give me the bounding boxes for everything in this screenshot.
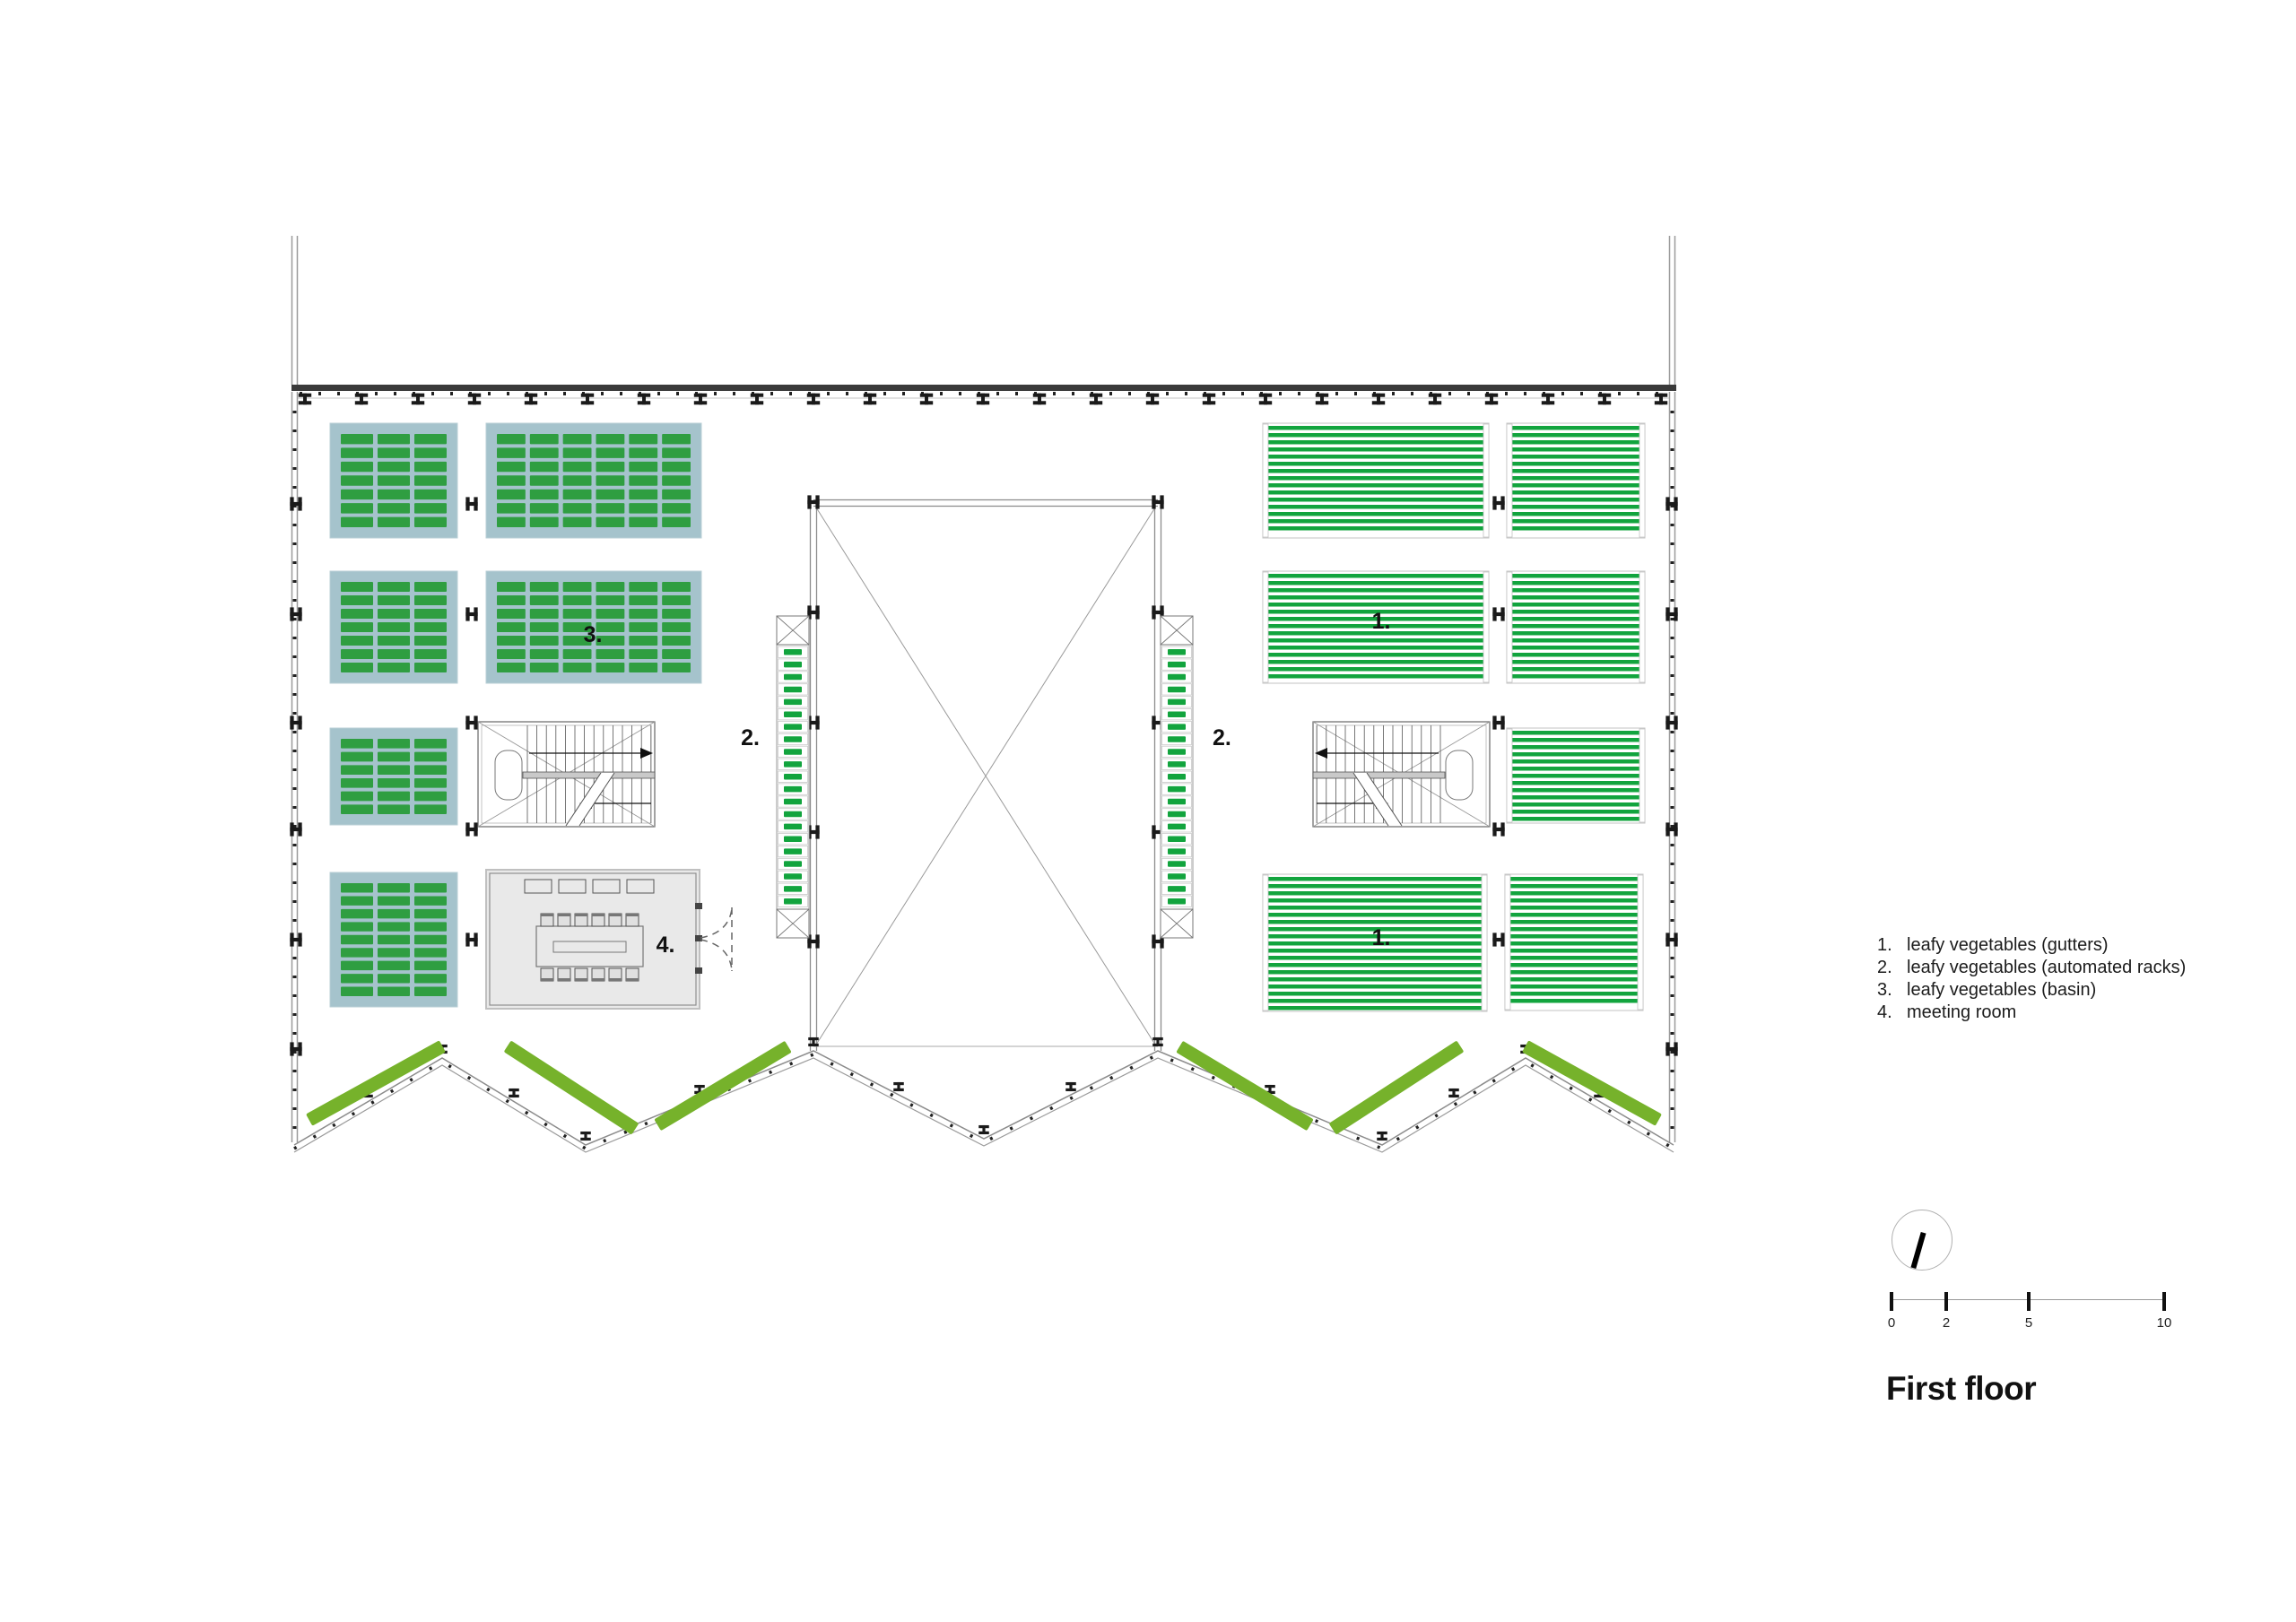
scale-bar: 0 2 5 10 [1890, 1292, 2164, 1333]
facade-planting-strip [1176, 1041, 1313, 1131]
i-column-icon [1448, 1089, 1459, 1097]
i-column-icon [1033, 394, 1046, 405]
h-column-icon [290, 1042, 301, 1055]
scale-label: 5 [2025, 1315, 2032, 1331]
meeting-table [536, 926, 643, 967]
i-column-icon [978, 1125, 989, 1134]
i-column-icon [1598, 394, 1611, 405]
legend-label: meeting room [1907, 1002, 2016, 1024]
facade-planting-strip [1522, 1040, 1662, 1126]
atrium [811, 499, 1161, 1051]
i-column-icon [299, 394, 311, 405]
cabinet [627, 880, 654, 893]
gutter-bed [1507, 571, 1645, 683]
scale-tick [1944, 1292, 1948, 1311]
floor-plan-sheet: 3. 1. 1. 2. 2. 4. 1. leafy vegetables (g… [0, 0, 2296, 1622]
i-column-icon [977, 394, 989, 405]
north-wall [291, 385, 1676, 391]
i-column-icon [1372, 394, 1385, 405]
cabinet [559, 880, 586, 893]
south-zigzag-facade [294, 1037, 1674, 1152]
i-column-icon [355, 394, 368, 405]
cabinet [525, 880, 552, 893]
i-column-icon [751, 394, 763, 405]
i-column-icon [1090, 394, 1102, 405]
legend-item-2: 2. leafy vegetables (automated racks) [1877, 957, 2186, 979]
basin [330, 728, 457, 825]
i-column-icon [580, 1132, 591, 1141]
gutter-bed [1505, 874, 1643, 1010]
h-column-icon [465, 932, 477, 946]
i-column-icon [468, 394, 481, 405]
legend-num: 3. [1877, 979, 1907, 1002]
h-column-icon [1665, 932, 1677, 946]
scale-tick [2162, 1292, 2166, 1311]
i-column-icon [1429, 394, 1441, 405]
gutter-bed [1507, 728, 1645, 823]
scale-label: 10 [2157, 1315, 2172, 1331]
i-column-icon [864, 394, 876, 405]
i-column-icon [581, 394, 594, 405]
label-gutters-upper: 1. [1372, 609, 1391, 634]
label-racks-right: 2. [1213, 725, 1231, 750]
h-column-icon [290, 822, 301, 836]
h-column-icon [1665, 716, 1677, 729]
legend-num: 2. [1877, 957, 1907, 979]
label-gutters-lower: 1. [1372, 925, 1391, 950]
h-column-icon [465, 716, 477, 729]
h-column-icon [290, 932, 301, 946]
h-column-icon [1492, 496, 1504, 509]
right-staircase [1313, 722, 1490, 827]
left-staircase [478, 722, 655, 827]
staircases [478, 722, 1490, 827]
cabinet [593, 880, 620, 893]
scale-label: 2 [1943, 1315, 1950, 1331]
facade-planting-strips [306, 1040, 1662, 1134]
basin [330, 571, 457, 683]
upper-canopy-lines [292, 236, 1675, 385]
h-column-icon [1492, 932, 1504, 946]
facade-planting-strip [654, 1041, 791, 1131]
h-column-icon [1665, 1042, 1677, 1055]
h-column-icon [290, 497, 301, 510]
i-column-icon [1377, 1132, 1387, 1141]
h-column-icon [1492, 716, 1504, 729]
legend: 1. leafy vegetables (gutters) 2. leafy v… [1877, 934, 2186, 1024]
label-basin: 3. [584, 622, 603, 647]
label-racks-left: 2. [741, 725, 760, 750]
h-column-icon [1665, 822, 1677, 836]
i-column-icon [893, 1082, 904, 1091]
i-column-icon [525, 394, 537, 405]
i-column-icon [1146, 394, 1159, 405]
i-column-icon [1065, 1082, 1076, 1091]
gutter-bed [1507, 423, 1645, 538]
automated-rack [777, 616, 809, 938]
i-column-icon [638, 394, 650, 405]
i-column-icon [412, 394, 424, 405]
north-arrow-icon [1892, 1210, 1952, 1271]
i-column-icon [1485, 394, 1498, 405]
i-column-icon [807, 394, 820, 405]
legend-num: 1. [1877, 934, 1907, 957]
h-column-icon [1665, 497, 1677, 510]
automated-rack [1161, 616, 1193, 938]
h-column-icon [1492, 822, 1504, 836]
legend-item-4: 4. meeting room [1877, 1002, 2186, 1024]
legend-item-1: 1. leafy vegetables (gutters) [1877, 934, 2186, 957]
legend-label: leafy vegetables (automated racks) [1907, 957, 2186, 979]
facade-planting-strip [1329, 1040, 1465, 1134]
i-column-icon [694, 394, 707, 405]
legend-label: leafy vegetables (basin) [1907, 979, 2096, 1002]
i-column-icon [1655, 394, 1667, 405]
h-column-icon [465, 822, 477, 836]
h-column-icon [465, 607, 477, 620]
i-column-icon [509, 1089, 519, 1097]
i-column-icon [920, 394, 933, 405]
basin [330, 872, 457, 1007]
meeting-door [695, 903, 732, 974]
i-column-icon [1203, 394, 1215, 405]
h-column-icon [465, 497, 477, 510]
i-column-icon [1316, 394, 1328, 405]
scale-label: 0 [1888, 1315, 1895, 1331]
scale-tick [2027, 1292, 2031, 1311]
north-needle [1910, 1232, 1926, 1269]
gutter-bed [1263, 423, 1489, 538]
facade-planting-strip [504, 1040, 639, 1134]
label-meeting-room: 4. [657, 932, 675, 958]
scale-tick [1890, 1292, 1893, 1311]
h-column-icon [1152, 495, 1163, 508]
basin [330, 423, 457, 538]
sheet-title: First floor [1886, 1370, 2036, 1408]
i-column-icon [1542, 394, 1554, 405]
h-column-icon [1492, 607, 1504, 620]
legend-num: 4. [1877, 1002, 1907, 1024]
facade-planting-strip [306, 1040, 446, 1126]
h-column-icon [807, 495, 819, 508]
basin [486, 423, 701, 538]
h-column-icon [290, 716, 301, 729]
legend-item-3: 3. leafy vegetables (basin) [1877, 979, 2186, 1002]
leafy-vegetable-gutter-beds [1263, 423, 1645, 1011]
legend-label: leafy vegetables (gutters) [1907, 934, 2109, 957]
i-column-icon [1259, 394, 1272, 405]
atrium-void-cross [816, 507, 1155, 1045]
